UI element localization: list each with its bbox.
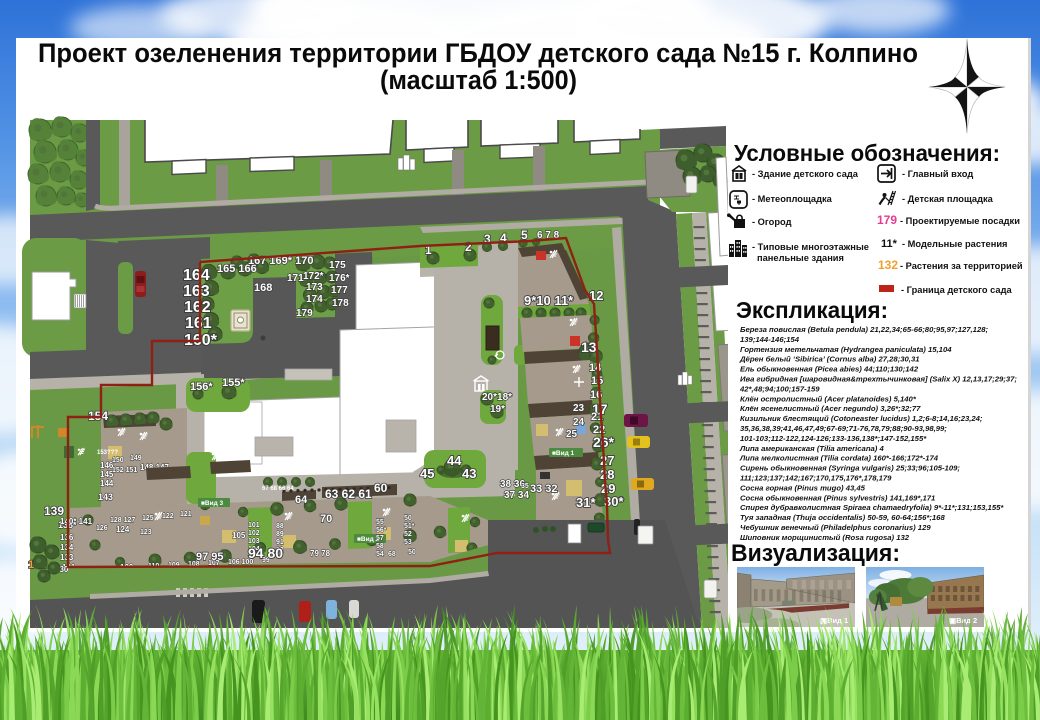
svg-text:Липа американская (Tilia ameri: Липа американская (Tilia americana) 4 xyxy=(739,444,884,453)
svg-text:- Модельные растения: - Модельные растения xyxy=(902,239,1007,249)
svg-text:- Главный вход: - Главный вход xyxy=(902,169,973,179)
svg-text:126: 126 xyxy=(96,525,108,532)
svg-text:177: 177 xyxy=(331,285,348,296)
svg-text:37 34: 37 34 xyxy=(504,490,529,501)
svg-text:149: 149 xyxy=(130,455,142,462)
svg-text:58: 58 xyxy=(376,543,384,550)
svg-text:102: 102 xyxy=(248,530,260,537)
svg-text:13: 13 xyxy=(581,339,597,355)
svg-text:35: 35 xyxy=(521,483,529,490)
svg-text:94 80: 94 80 xyxy=(248,545,283,561)
svg-text:42*,48;94;100;157-159: 42*,48;94;100;157-159 xyxy=(739,384,820,393)
svg-text:143: 143 xyxy=(98,492,113,502)
svg-text:Ель обыкновенная (Picea abies): Ель обыкновенная (Picea abies) 44;110;13… xyxy=(740,365,919,374)
svg-text:Сосна обыкновенная (Pinus sylv: Сосна обыкновенная (Pinus sylvestris) 14… xyxy=(740,493,935,502)
svg-text:Визуализация:: Визуализация: xyxy=(731,540,900,567)
svg-text:55: 55 xyxy=(376,519,384,526)
svg-text:- Детская площадка: - Детская площадка xyxy=(902,194,994,204)
svg-text:15: 15 xyxy=(591,375,603,387)
svg-text:176*: 176* xyxy=(329,273,350,284)
svg-text:45: 45 xyxy=(420,466,434,481)
svg-text:Береза повислая (Betula pendul: Береза повислая (Betula pendula) 21,22,3… xyxy=(740,325,989,334)
svg-text:■Вид 3: ■Вид 3 xyxy=(201,500,224,507)
svg-text:174: 174 xyxy=(306,294,323,305)
svg-text:101-103;112-122,124-126;133-13: 101-103;112-122,124-126;133-136,138*;147… xyxy=(740,434,927,443)
svg-text:89: 89 xyxy=(276,531,284,538)
svg-text:140* 141: 140* 141 xyxy=(60,517,93,526)
svg-text:Чебушник венечный (Philadelphu: Чебушник венечный (Philadelphus coronari… xyxy=(740,523,931,532)
svg-text:20*18*: 20*18* xyxy=(482,392,512,403)
svg-text:156*: 156* xyxy=(190,381,213,393)
svg-text:88: 88 xyxy=(276,523,284,530)
svg-text:- Метеоплощадка: - Метеоплощадка xyxy=(752,194,833,204)
svg-text:153???: 153??? xyxy=(97,450,118,456)
svg-text:43: 43 xyxy=(462,466,476,481)
svg-text:35,36,38,39;41,46,47,49;67-69;: 35,36,38,39;41,46,47,49;67-69;71-76,78,7… xyxy=(740,424,947,433)
svg-text:164: 164 xyxy=(183,267,210,284)
svg-text:70: 70 xyxy=(320,513,332,525)
svg-text:Спирея дубравколистная Spiraea: Спирея дубравколистная Spiraea chamaedry… xyxy=(740,503,1004,512)
svg-text:27: 27 xyxy=(600,453,614,468)
svg-text:Туя западная (Thuja occidental: Туя западная (Thuja occidentalis) 50-59,… xyxy=(740,513,945,522)
svg-text:Экспликация:: Экспликация: xyxy=(736,297,888,323)
svg-text:57: 57 xyxy=(376,535,384,542)
svg-text:139: 139 xyxy=(44,504,64,518)
svg-text:Дёрен белый ‘Sibirica’ (Cornus: Дёрен белый ‘Sibirica’ (Cornus alba) 27,… xyxy=(739,355,920,364)
svg-text:172*: 172* xyxy=(303,271,324,282)
svg-text:- Здание детского сада: - Здание детского сада xyxy=(752,169,859,179)
svg-text:178: 178 xyxy=(332,298,349,309)
svg-text:179: 179 xyxy=(877,213,897,227)
svg-text:Кизильник блестящий (Cotoneast: Кизильник блестящий (Cotoneaster lucidus… xyxy=(740,414,983,423)
svg-text:31*: 31* xyxy=(576,495,596,510)
svg-text:139;144-146;154: 139;144-146;154 xyxy=(740,335,800,344)
svg-text:53: 53 xyxy=(404,539,412,546)
svg-text:155*: 155* xyxy=(222,377,245,389)
svg-text:63 62 61: 63 62 61 xyxy=(325,487,372,501)
svg-text:28: 28 xyxy=(600,467,614,482)
svg-text:132: 132 xyxy=(878,258,898,272)
svg-text:50: 50 xyxy=(408,549,416,556)
svg-text:33 32: 33 32 xyxy=(530,483,558,495)
svg-text:60: 60 xyxy=(374,481,388,495)
svg-text:- Огород: - Огород xyxy=(752,217,792,227)
svg-text:173: 173 xyxy=(306,282,323,293)
svg-text:51*: 51* xyxy=(404,523,415,530)
svg-text:105: 105 xyxy=(232,531,246,540)
svg-text:Клён ясенелистный (Acer negund: Клён ясенелистный (Acer negundo) 3,26*;3… xyxy=(740,404,921,413)
svg-text:171: 171 xyxy=(287,273,304,284)
svg-text:121: 121 xyxy=(180,511,192,518)
svg-text:101: 101 xyxy=(248,522,260,529)
svg-text:Гортензия метельчатая (Hydrang: Гортензия метельчатая (Hydrangea panicul… xyxy=(740,345,952,354)
svg-text:- Проектируемые посадки: - Проектируемые посадки xyxy=(900,216,1020,226)
svg-text:- Типовые многоэтажные: - Типовые многоэтажные xyxy=(752,242,869,252)
svg-text:161: 161 xyxy=(185,315,212,332)
svg-text:Липа мелколистная (Tilia corda: Липа мелколистная (Tilia cordata) 160*-1… xyxy=(739,454,939,463)
svg-text:64: 64 xyxy=(295,494,308,506)
svg-text:97 95: 97 95 xyxy=(196,551,224,563)
svg-text:2: 2 xyxy=(465,240,472,254)
svg-text:9*10 11*: 9*10 11* xyxy=(524,293,574,308)
svg-text:152 151: 152 151 xyxy=(112,467,137,474)
svg-text:67 68 66 64: 67 68 66 64 xyxy=(262,486,294,492)
svg-text:■Вид 1: ■Вид 1 xyxy=(552,450,575,457)
svg-text:5: 5 xyxy=(521,228,528,242)
svg-text:19*: 19* xyxy=(490,404,505,415)
svg-text:124: 124 xyxy=(116,525,130,534)
svg-text:144: 144 xyxy=(100,479,114,488)
svg-text:14: 14 xyxy=(589,362,602,374)
svg-text:50: 50 xyxy=(404,515,412,522)
svg-text:24: 24 xyxy=(573,417,585,428)
svg-text:68: 68 xyxy=(388,551,396,558)
svg-text:- Растения за территорией: - Растения за территорией xyxy=(900,261,1023,271)
svg-text:168: 168 xyxy=(254,282,272,294)
svg-text:163: 163 xyxy=(183,283,210,300)
svg-text:23: 23 xyxy=(573,403,585,414)
svg-text:128 127: 128 127 xyxy=(110,517,135,524)
svg-text:Сирень обыкновенная (Syringa v: Сирень обыкновенная (Syringa vulgaris) 2… xyxy=(740,464,960,473)
svg-text:122: 122 xyxy=(162,513,174,520)
svg-text:56*: 56* xyxy=(376,527,387,534)
svg-text:11*: 11* xyxy=(881,238,898,250)
svg-text:111;123;137;142;167;170,175,17: 111;123;137;142;167;170,175,176*,178,179 xyxy=(740,474,892,483)
svg-text:123: 123 xyxy=(140,529,152,536)
svg-text:(масштаб 1:500): (масштаб 1:500) xyxy=(380,65,577,95)
svg-text:Условные обозначения:: Условные обозначения: xyxy=(734,140,1000,166)
svg-text:- Граница детского сада: - Граница детского сада xyxy=(901,285,1012,295)
svg-text:Клён остролистный (Acer platan: Клён остролистный (Acer platanoides) 5,1… xyxy=(740,394,917,403)
svg-text:25: 25 xyxy=(566,429,578,440)
svg-text:175: 175 xyxy=(329,260,346,271)
svg-text:Проект озеленения территории Г: Проект озеленения территории ГБДОУ детск… xyxy=(38,38,918,68)
svg-text:103: 103 xyxy=(248,538,260,545)
svg-text:79 78: 79 78 xyxy=(310,549,331,558)
svg-text:162: 162 xyxy=(184,299,211,316)
svg-text:52: 52 xyxy=(404,531,412,538)
svg-text:Ива гибридная [шаровидная&трех: Ива гибридная [шаровидная&трехтычинковая… xyxy=(740,375,1017,384)
svg-text:панельные здания: панельные здания xyxy=(757,253,844,263)
svg-text:44: 44 xyxy=(447,453,462,468)
svg-text:125: 125 xyxy=(142,515,154,522)
svg-text:179: 179 xyxy=(296,308,313,319)
svg-text:54: 54 xyxy=(376,551,384,558)
svg-text:Сосна горная (Pinus mugo) 43,4: Сосна горная (Pinus mugo) 43,45 xyxy=(740,483,866,492)
svg-text:150: 150 xyxy=(112,457,124,464)
